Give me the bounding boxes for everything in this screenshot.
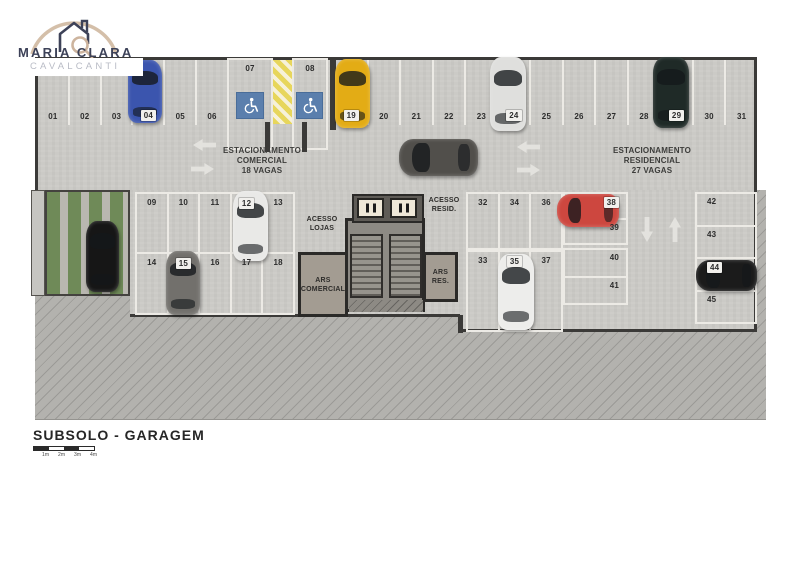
parking-space: 34: [500, 194, 532, 248]
parking-row-14-18: 1415161718: [137, 254, 293, 313]
space-number: 35: [507, 256, 522, 267]
staircase-residential: [389, 234, 422, 298]
space-number: 29: [669, 110, 684, 121]
space-number: 39: [610, 223, 619, 232]
parking-space: 09: [137, 194, 169, 252]
space-number: 20: [379, 112, 388, 121]
space-number: 21: [412, 112, 421, 121]
logo-name: MARIA CLARA: [18, 45, 133, 60]
parking-space: 06: [197, 60, 227, 125]
elevator-icon: [357, 198, 384, 218]
space-number: 36: [542, 198, 551, 207]
scale-bar: [33, 446, 95, 451]
space-number: 03: [112, 112, 121, 121]
space-number: 07: [245, 64, 254, 73]
staircase-commercial: [350, 234, 383, 298]
hazard-stripe-zone: [273, 60, 292, 124]
parking-space: 30: [694, 60, 727, 125]
parking-space: 05: [165, 60, 197, 125]
parking-space: 37: [531, 252, 561, 330]
space-number: 38: [604, 197, 619, 208]
parking-block-19-31: 19202122232425262728293031: [336, 60, 757, 125]
parking-space: 14: [137, 254, 169, 313]
parking-space: 21: [401, 60, 434, 125]
parking-space: 22: [434, 60, 467, 125]
scale-segment: [34, 447, 49, 450]
garage-floor-plan: 010203040506 07 08 192021222324252627282…: [0, 0, 800, 566]
parking-space: 45: [697, 292, 755, 323]
parking-space: 11: [200, 194, 232, 252]
space-number: 23: [477, 112, 486, 121]
parking-row-09-13: 0910111213: [137, 194, 293, 254]
residential-zone-label: ESTACIONAMENTO RESIDENCIAL 27 VAGAS: [590, 146, 714, 176]
space-number: 44: [707, 262, 722, 273]
space-number: 06: [207, 112, 216, 121]
space-number: 43: [707, 230, 716, 239]
parking-space: 16: [200, 254, 232, 313]
space-number: 26: [574, 112, 583, 121]
space-number: 18: [274, 258, 283, 267]
scale-segment: [64, 447, 79, 450]
parking-block-09-18: 0910111213 1415161718: [135, 192, 295, 315]
space-number: 10: [179, 198, 188, 207]
scale-label: 2m: [49, 452, 65, 458]
parking-space: 20: [369, 60, 402, 125]
parking-space: 40: [565, 250, 626, 278]
outer-wall-left: [31, 190, 45, 296]
space-number: 02: [80, 112, 89, 121]
space-number: 28: [639, 112, 648, 121]
parking-space: 32: [468, 194, 500, 248]
wall-step: [458, 315, 463, 333]
parking-block-40-41: 4041: [563, 248, 628, 305]
car-driveway: [399, 139, 478, 176]
space-number: 04: [141, 110, 156, 121]
space-number: 42: [707, 197, 716, 206]
scale-label: 4m: [81, 452, 97, 458]
space-number: 41: [610, 281, 619, 290]
space-number: 45: [707, 295, 716, 304]
space-number: 24: [506, 110, 521, 121]
parking-space: 27: [596, 60, 629, 125]
space-number: 09: [147, 198, 156, 207]
space-number: 32: [478, 198, 487, 207]
parking-space: 31: [726, 60, 757, 125]
parking-space: 33: [468, 252, 500, 330]
scale-label: 3m: [65, 452, 81, 458]
scale-labels: 1m2m3m4m: [33, 452, 97, 458]
parking-block-32-36: 323436: [466, 192, 563, 250]
parking-space: 10: [169, 194, 201, 252]
wheelchair-icon: [236, 92, 264, 119]
parking-space: 41: [565, 278, 626, 304]
wheelchair-icon: [296, 92, 323, 119]
access-residential-label: ACESSO RESID.: [416, 196, 472, 214]
scale-segment: [49, 447, 64, 450]
space-number: 37: [542, 256, 551, 265]
parking-space: 26: [564, 60, 597, 125]
space-number: 08: [305, 64, 314, 73]
space-number: 40: [610, 253, 619, 262]
space-number: 25: [542, 112, 551, 121]
core-hatch-strip: [349, 300, 423, 312]
parking-space: 43: [697, 227, 755, 260]
parking-block-42-45: 42434445: [695, 192, 757, 324]
space-number: 14: [147, 258, 156, 267]
space-number: 05: [176, 112, 185, 121]
space-number: 30: [704, 112, 713, 121]
logo-subname: CAVALCANTI: [30, 61, 120, 72]
space-number: 33: [478, 256, 487, 265]
ars-residential-room: ARS RES.: [423, 252, 458, 302]
space-number: 31: [737, 112, 746, 121]
parking-space: 25: [531, 60, 564, 125]
parking-space: 36: [531, 194, 561, 248]
access-shops-label: ACESSO LOJAS: [296, 215, 348, 233]
scale-segment: [79, 447, 94, 450]
parking-space: 18: [263, 254, 293, 313]
space-number: 01: [48, 112, 57, 121]
parking-space: 17: [232, 254, 264, 313]
space-number: 13: [274, 198, 283, 207]
space-number: 34: [510, 198, 519, 207]
elevator-icon: [390, 198, 417, 218]
space-number: 15: [176, 258, 191, 269]
space-number: 16: [210, 258, 219, 267]
space-number: 22: [444, 112, 453, 121]
space-number: 19: [344, 110, 359, 121]
car-ramp: [86, 221, 119, 292]
space-number: 27: [607, 112, 616, 121]
plan-title: SUBSOLO - GARAGEM: [33, 427, 205, 443]
ars-commercial-label: ARS COMERCIAL: [301, 276, 345, 294]
car-space-44: [696, 260, 757, 291]
space-number: 12: [239, 198, 254, 209]
space-number: 17: [242, 258, 251, 267]
commercial-zone-label: ESTACIONAMENTO COMERCIAL 18 VAGAS: [200, 146, 324, 176]
ars-commercial-room: ARS COMERCIAL: [298, 252, 348, 317]
scale-label: 1m: [33, 452, 49, 458]
parking-space: 42: [697, 194, 755, 227]
ars-residential-label: ARS RES.: [432, 268, 449, 286]
space-number: 11: [211, 198, 220, 207]
